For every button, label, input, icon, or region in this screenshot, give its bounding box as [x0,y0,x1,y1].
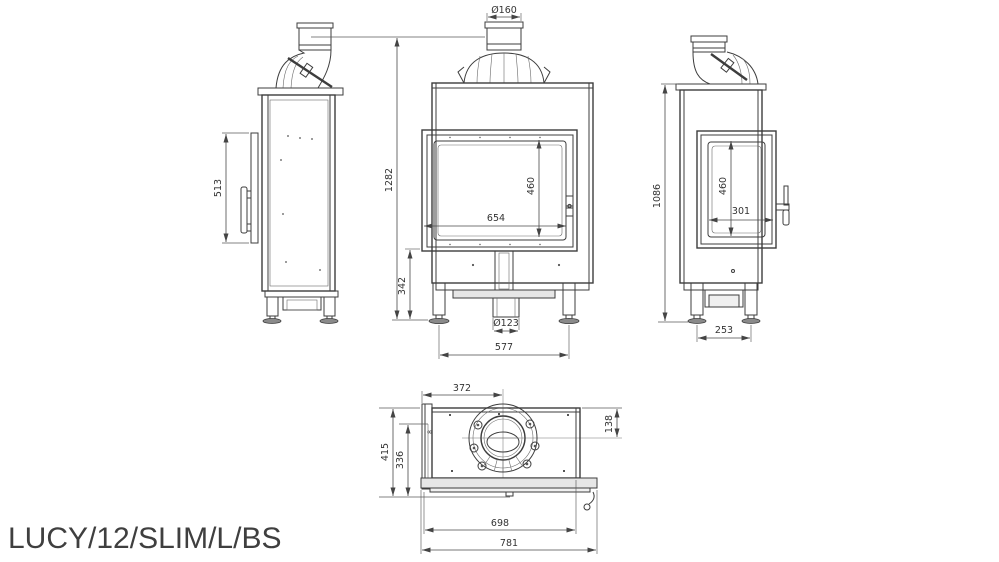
dim-glass-height-front-label: 460 [526,177,537,195]
side-view-right: 460 301 1086 253 [652,36,789,342]
dim-glass-width: 654 [424,213,566,226]
dim-depth-inner-label: 336 [395,451,406,469]
door-right [697,131,789,248]
dim-glass-width-label: 654 [487,213,505,224]
dim-feet-spacing-right: 253 [697,325,751,342]
dim-glass-height-right: 460 [718,141,731,236]
dim-base-height: 342 [397,249,420,319]
dim-flue-from-left-label: 372 [453,383,471,394]
dim-flue-from-back-label: 138 [604,415,615,433]
dim-side-glass-width-label: 301 [732,206,750,217]
flue-elbow-right [691,36,758,84]
dim-left-door-height-label: 513 [213,179,224,197]
plinth-front [429,251,579,324]
door-front [422,130,577,251]
top-view: 372 138 415 336 8 698 781 [379,383,622,554]
dim-width-inner-label: 698 [491,518,509,529]
dim-left-door-height: 513 [213,133,249,243]
legs-right [688,283,760,324]
handle-right [784,186,788,205]
dim-feet-spacing-right-label: 253 [715,325,733,336]
side-glass-wing [422,404,432,489]
front-view: Ø160 [311,5,593,359]
dim-air-inlet-label: Ø123 [493,318,519,329]
dim-base-height-label: 342 [397,277,408,295]
flue-front [311,22,550,83]
dim-depth-total-label: 415 [380,443,391,461]
dim-flue-diameter-label: Ø160 [491,5,517,16]
side-view-left: 513 [213,23,343,324]
model-title: LUCY/12/SLIM/L/BS [8,522,281,556]
technical-drawing-canvas: 513 Ø160 [0,0,999,562]
dim-glass-height-front: 460 [526,140,539,237]
dim-total-height-label: 1282 [384,168,395,192]
dim-glass-thickness-label: 8 [427,430,434,434]
body-left [258,88,343,297]
technical-drawing-page: 513 Ø160 [0,0,999,562]
dim-feet-spacing-front-label: 577 [495,342,513,353]
legs-left [263,297,338,324]
dim-flue-diameter: Ø160 [487,5,521,21]
dim-side-glass-width: 301 [709,206,773,220]
damper-chain [589,492,594,504]
dim-flue-from-left: 372 [422,383,502,403]
dim-air-inlet: Ø123 [493,318,519,331]
dim-right-total-height-label: 1086 [652,184,663,208]
dim-feet-spacing-front: 577 [439,325,569,359]
flue-elbow-left [276,23,333,88]
dim-width-total-label: 781 [500,538,518,549]
dim-flue-from-back: 138 [582,408,622,437]
dim-right-total-height: 1086 [652,84,688,322]
dim-glass-height-right-label: 460 [718,177,729,195]
door-edge-and-handle-left [241,133,258,243]
